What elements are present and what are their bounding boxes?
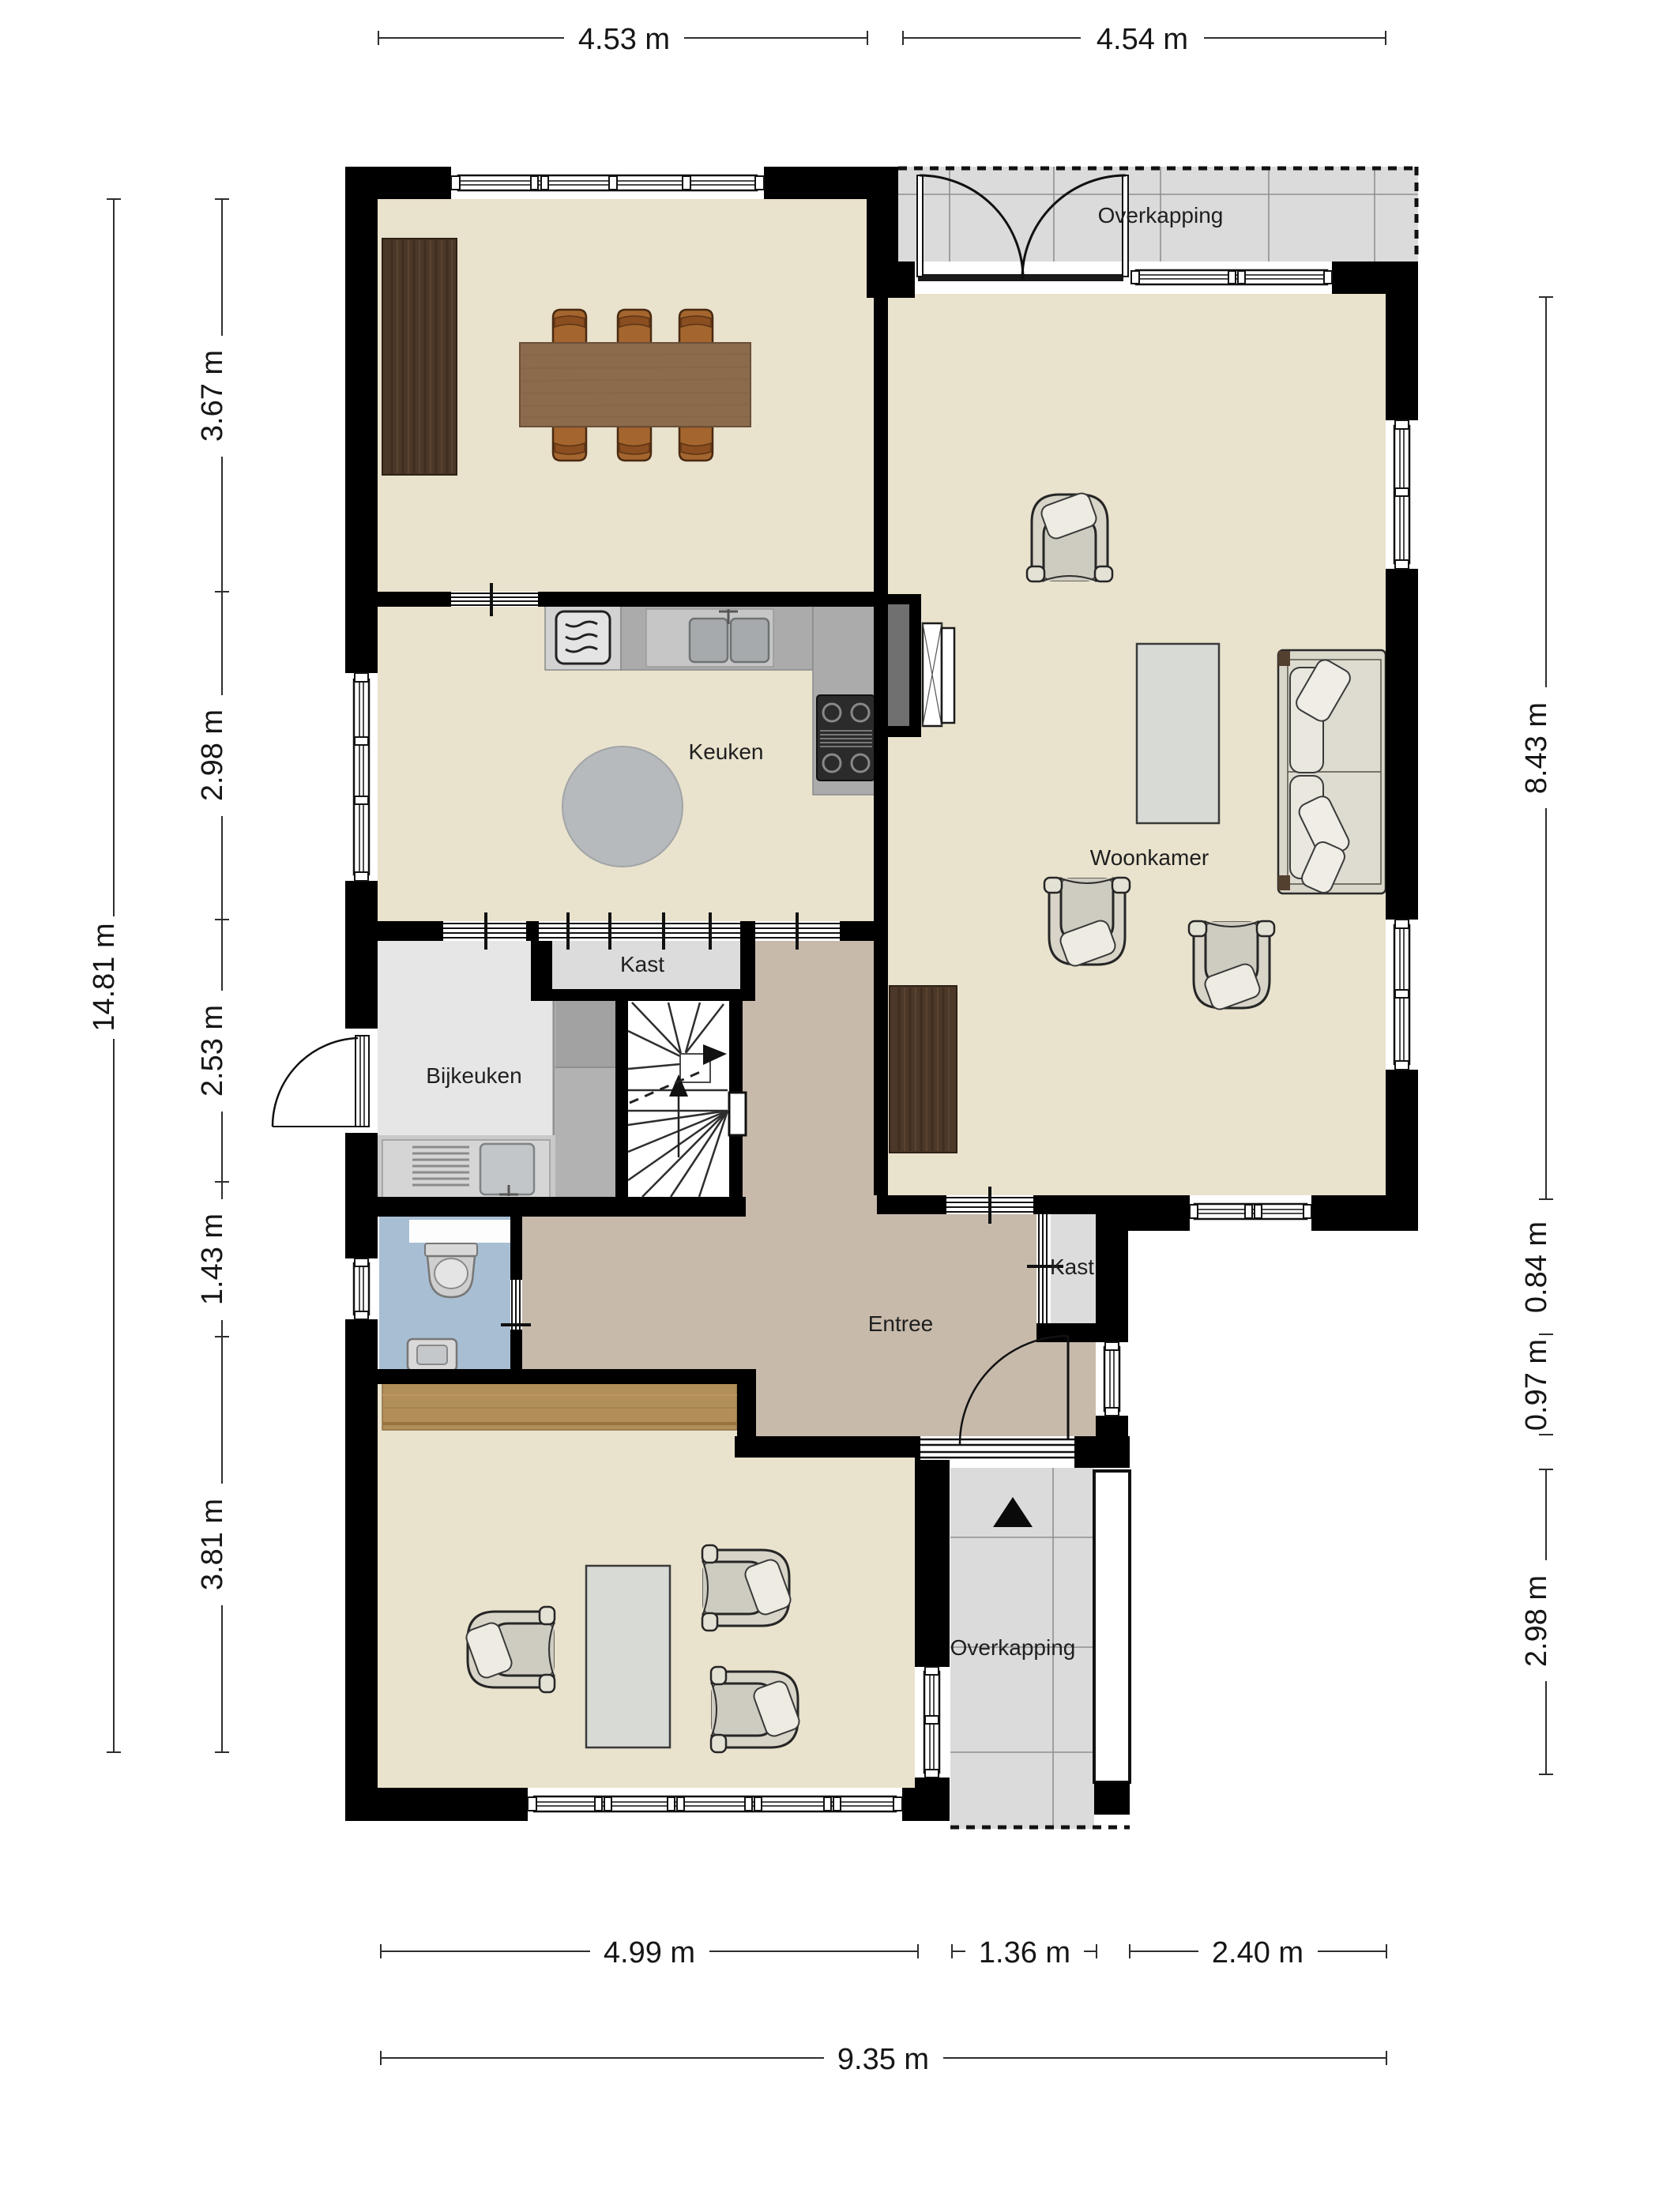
svg-text:2.40 m: 2.40 m	[1212, 1936, 1303, 1969]
svg-text:0.84 m: 0.84 m	[1520, 1221, 1553, 1313]
svg-text:1.36 m: 1.36 m	[979, 1936, 1070, 1969]
svg-text:3.67 m: 3.67 m	[196, 350, 229, 442]
svg-text:4.54 m: 4.54 m	[1097, 23, 1188, 56]
svg-text:2.98 m: 2.98 m	[196, 709, 229, 801]
svg-text:Entree: Entree	[868, 1311, 934, 1336]
svg-text:1.43 m: 1.43 m	[196, 1213, 229, 1305]
svg-text:2.98 m: 2.98 m	[1520, 1575, 1553, 1667]
svg-text:8.43 m: 8.43 m	[1520, 702, 1553, 794]
svg-text:Kast: Kast	[620, 952, 664, 976]
svg-text:Bijkeuken: Bijkeuken	[426, 1063, 521, 1088]
svg-text:Kast: Kast	[1050, 1255, 1094, 1279]
svg-text:0.97 m: 0.97 m	[1520, 1339, 1553, 1431]
svg-text:14.81 m: 14.81 m	[88, 923, 121, 1031]
svg-text:Keuken: Keuken	[689, 739, 764, 764]
svg-text:Woonkamer: Woonkamer	[1090, 845, 1209, 870]
svg-text:Overkapping: Overkapping	[950, 1635, 1076, 1660]
svg-text:Overkapping: Overkapping	[1098, 203, 1224, 228]
svg-text:4.53 m: 4.53 m	[578, 23, 670, 56]
svg-text:2.53 m: 2.53 m	[196, 1005, 229, 1097]
svg-text:3.81 m: 3.81 m	[196, 1499, 229, 1590]
svg-text:9.35 m: 9.35 m	[837, 2043, 929, 2076]
svg-text:4.99 m: 4.99 m	[604, 1936, 695, 1969]
